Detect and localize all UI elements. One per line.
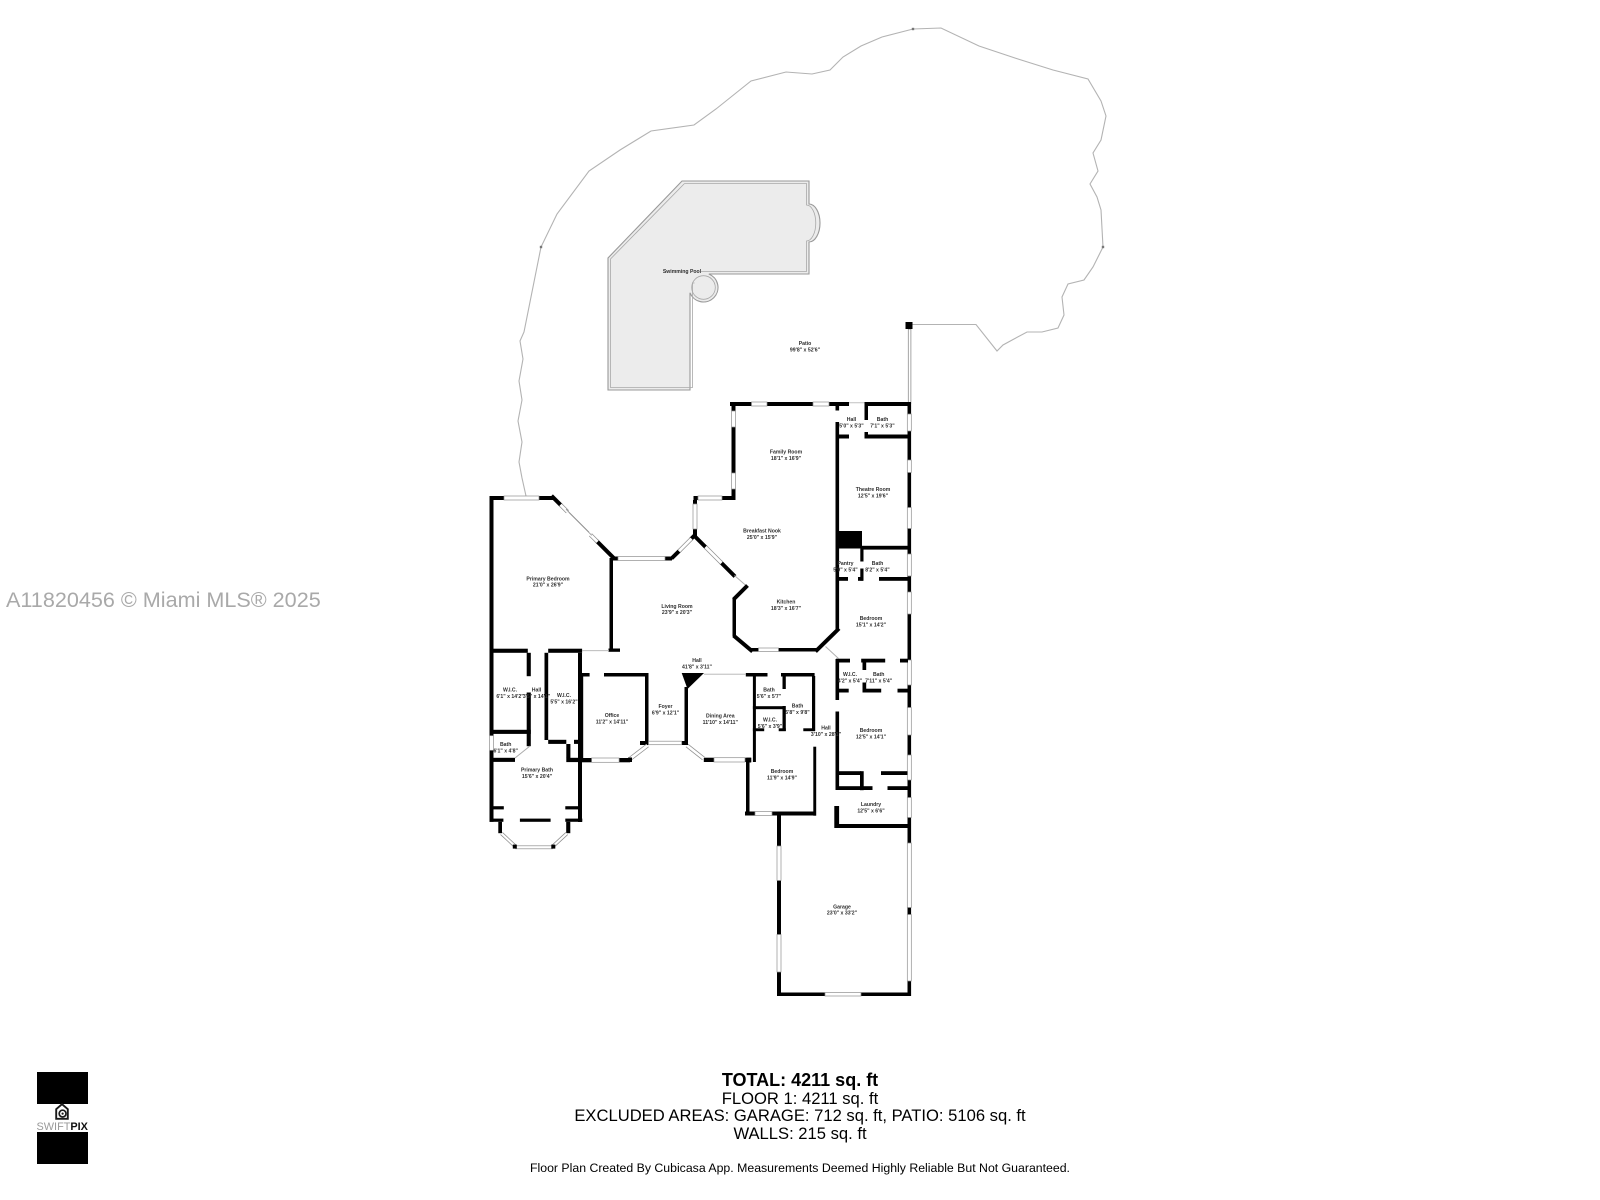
svg-text:W.I.C.: W.I.C. xyxy=(843,672,858,678)
svg-text:12'5" x 14'1": 12'5" x 14'1" xyxy=(856,734,887,740)
svg-text:Pantry: Pantry xyxy=(838,561,854,567)
svg-text:Laundry: Laundry xyxy=(861,802,881,808)
svg-text:6'1" x 14'2": 6'1" x 14'2" xyxy=(496,694,524,700)
svg-text:6'1" x 4'8": 6'1" x 4'8" xyxy=(493,748,518,754)
svg-text:7'1" x 5'3": 7'1" x 5'3" xyxy=(870,423,895,429)
svg-text:4'2" x 5'4": 4'2" x 5'4" xyxy=(838,678,863,684)
svg-text:12'5" x 19'6": 12'5" x 19'6" xyxy=(858,493,889,499)
svg-text:Patio: Patio xyxy=(799,341,812,347)
svg-text:Bath: Bath xyxy=(877,417,888,423)
svg-text:Bath: Bath xyxy=(873,672,884,678)
svg-text:12'5" x 6'6": 12'5" x 6'6" xyxy=(857,808,885,814)
svg-text:11'10" x 14'11": 11'10" x 14'11" xyxy=(703,720,739,726)
svg-text:Bath: Bath xyxy=(792,704,803,710)
svg-text:41'8" x 3'11": 41'8" x 3'11" xyxy=(682,664,712,670)
svg-text:Primary Bath: Primary Bath xyxy=(521,768,553,774)
svg-text:5'6" x 5'7": 5'6" x 5'7" xyxy=(757,694,782,700)
svg-text:Bedroom: Bedroom xyxy=(860,616,883,622)
svg-text:18'3" x 16'7": 18'3" x 16'7" xyxy=(771,606,802,612)
svg-text:Bath: Bath xyxy=(500,742,511,748)
svg-text:5'9" x 5'4": 5'9" x 5'4" xyxy=(833,567,858,573)
svg-text:Hall: Hall xyxy=(692,658,702,664)
svg-text:6'9" x 12'1": 6'9" x 12'1" xyxy=(652,710,680,716)
svg-text:W.I.C.: W.I.C. xyxy=(763,718,778,724)
svg-text:25'0" x 15'9": 25'0" x 15'9" xyxy=(747,535,778,541)
svg-text:Breakfast Nook: Breakfast Nook xyxy=(743,529,781,535)
svg-text:3'5" x 14'1": 3'5" x 14'1" xyxy=(523,694,551,700)
svg-text:Bedroom: Bedroom xyxy=(860,728,883,734)
svg-text:Dining Area: Dining Area xyxy=(706,714,735,720)
svg-text:7'11" x 5'4": 7'11" x 5'4" xyxy=(865,678,893,684)
svg-text:Hall: Hall xyxy=(847,417,857,423)
svg-text:Primary Bedroom: Primary Bedroom xyxy=(526,577,570,583)
svg-text:Hall: Hall xyxy=(821,726,831,732)
svg-text:15'6" x 20'4": 15'6" x 20'4" xyxy=(522,774,553,780)
svg-text:21'0" x 26'9": 21'0" x 26'9" xyxy=(533,583,564,589)
svg-text:Office: Office xyxy=(605,713,620,719)
svg-text:23'9" x 20'3": 23'9" x 20'3" xyxy=(662,610,693,616)
svg-text:Bath: Bath xyxy=(872,561,883,567)
svg-text:Garage: Garage xyxy=(833,905,851,911)
svg-text:23'0" x 33'2": 23'0" x 33'2" xyxy=(827,911,858,917)
svg-text:99'8" x 52'6": 99'8" x 52'6" xyxy=(790,347,821,353)
svg-text:Foyer: Foyer xyxy=(659,704,673,710)
svg-text:5'5" x 16'2": 5'5" x 16'2" xyxy=(550,699,578,705)
svg-text:W.I.C.: W.I.C. xyxy=(503,688,518,694)
svg-text:15'1" x 14'2": 15'1" x 14'2" xyxy=(856,622,887,628)
svg-text:11'9" x 14'9": 11'9" x 14'9" xyxy=(767,775,797,781)
svg-text:Theatre Room: Theatre Room xyxy=(856,487,891,493)
svg-text:W.I.C.: W.I.C. xyxy=(557,693,572,699)
svg-text:5'8" x 9'8": 5'8" x 9'8" xyxy=(785,710,810,716)
svg-text:5'6" x 3'9": 5'6" x 3'9" xyxy=(758,724,783,730)
svg-text:5'0" x 5'3": 5'0" x 5'3" xyxy=(839,423,864,429)
svg-text:Living Room: Living Room xyxy=(661,604,693,610)
svg-text:Bedroom: Bedroom xyxy=(771,769,794,775)
svg-text:18'1" x 16'9": 18'1" x 16'9" xyxy=(771,456,802,462)
svg-text:Hall: Hall xyxy=(532,688,542,694)
svg-text:Kitchen: Kitchen xyxy=(777,600,796,606)
svg-text:Family Room: Family Room xyxy=(770,450,803,456)
svg-text:Bath: Bath xyxy=(763,688,774,694)
svg-text:11'2" x 14'11": 11'2" x 14'11" xyxy=(596,719,629,725)
svg-text:3'10" x 28'1": 3'10" x 28'1" xyxy=(811,732,842,738)
svg-text:8'2" x 5'4": 8'2" x 5'4" xyxy=(865,567,890,573)
svg-text:Swimming Pool: Swimming Pool xyxy=(663,269,702,275)
